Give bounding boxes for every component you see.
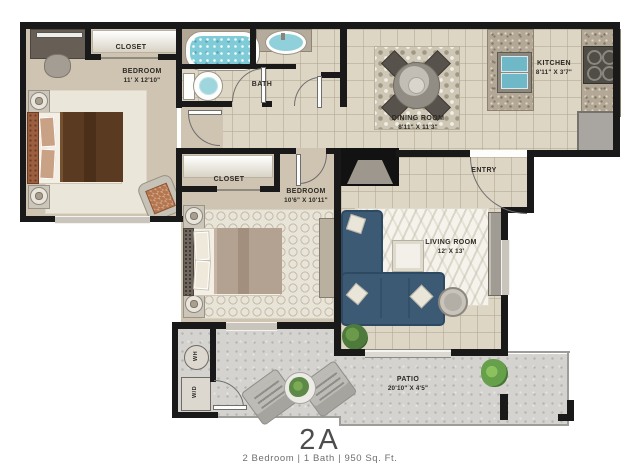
wall-closet2-bottom-a xyxy=(176,186,217,192)
wall-utility-left xyxy=(172,322,178,418)
wall-bedroom1-right-lower xyxy=(176,148,182,222)
toilet-water xyxy=(199,77,218,95)
living-window xyxy=(501,240,510,295)
bedroom2-window xyxy=(226,322,277,331)
bedroom1-pillow-1 xyxy=(39,117,56,148)
ottoman xyxy=(438,287,468,317)
wall-kitchen-right xyxy=(613,22,620,157)
bedroom2-door-leaf xyxy=(296,154,301,186)
entry-door-threshold xyxy=(470,150,527,157)
bath-label: BATH xyxy=(252,81,273,88)
bath-sink xyxy=(266,31,306,54)
nook-door-leaf xyxy=(317,76,322,108)
closet1-rod xyxy=(101,57,158,59)
closet1-label: CLOSET xyxy=(116,44,147,51)
bedroom1-label: BEDROOM xyxy=(122,68,161,75)
closet2-shelf xyxy=(183,155,273,178)
bedroom1-dims: 11' X 12'10" xyxy=(124,77,161,84)
wall-utility-bottom xyxy=(172,412,218,418)
water-heater-label: WH xyxy=(193,351,199,361)
bedroom2-headboard xyxy=(183,228,194,296)
wall-closet1-bottom-a xyxy=(85,54,101,60)
corner-plant xyxy=(342,324,368,350)
wall-closet1-bottom-b xyxy=(158,54,182,60)
kitchen-sink-basin-top xyxy=(501,56,528,72)
bedroom2-pillow-2 xyxy=(194,261,210,290)
hall-door-leaf xyxy=(188,110,222,115)
patio-label: PATIO xyxy=(397,376,419,383)
bedroom2-dims: 10'6" X 10'11" xyxy=(284,197,328,204)
stove-burner-3 xyxy=(587,66,602,81)
sliding-door xyxy=(365,349,451,358)
wall-closet2-right xyxy=(274,148,280,192)
wall-top xyxy=(20,22,620,29)
wall-utility-right xyxy=(210,328,216,382)
wall-entry-left-segment xyxy=(396,150,470,157)
patio-post xyxy=(500,394,508,420)
bedroom1-headboard xyxy=(27,112,39,184)
floorplan-canvas: WH W/D xyxy=(0,0,640,475)
bedroom2-lamp-top xyxy=(185,207,203,225)
closet2-label: CLOSET xyxy=(214,176,245,183)
wall-bath-dining-divider xyxy=(340,29,347,107)
bath-faucet xyxy=(281,33,285,40)
patio-plant-right xyxy=(481,359,508,387)
coffee-table xyxy=(392,240,424,272)
dining-room-dims: 8'11" X 11'3" xyxy=(398,124,438,131)
dining-room-label: DINING ROOM xyxy=(392,115,445,122)
patio-floor-right xyxy=(341,354,569,426)
wall-bedroom2-top-stub xyxy=(326,148,334,154)
living-room-label: LIVING ROOM xyxy=(425,239,476,246)
wall-bath-stub xyxy=(250,29,256,69)
bedroom1-lamp-top xyxy=(30,92,48,110)
wall-left xyxy=(20,22,26,222)
stove-burner-1 xyxy=(587,50,602,65)
living-room-dims: 12' X 13' xyxy=(438,248,465,255)
kitchen-dims: 8'11" X 3'7" xyxy=(536,69,572,76)
bedroom1-pillow-2 xyxy=(39,149,56,180)
bedroom1-lamp-bottom xyxy=(30,187,48,205)
closet2-rod xyxy=(217,189,260,191)
bedroom1-desk-chair xyxy=(44,54,71,78)
patio-rail-top xyxy=(506,351,570,353)
wall-bath-bottom-a xyxy=(176,101,232,107)
bedroom2-pillow-1 xyxy=(194,232,209,261)
sofa-seat-line-1 xyxy=(380,278,382,318)
bedroom1-window xyxy=(55,216,150,224)
sofa-seat-line-2 xyxy=(408,278,410,318)
wall-entry-vertical xyxy=(527,157,534,213)
bedroom2-label: BEDROOM xyxy=(286,188,325,195)
patio-corner-b xyxy=(567,400,574,421)
wall-living-bottom-right xyxy=(451,349,508,356)
entry-label: ENTRY xyxy=(471,167,496,174)
kitchen-label: KITCHEN xyxy=(537,60,571,67)
bedroom2-blanket-fold xyxy=(238,228,249,294)
dining-place-setting xyxy=(408,77,425,94)
tv-on-dresser xyxy=(36,32,83,38)
bedroom2-dresser xyxy=(319,218,335,298)
bedroom2-lamp-bottom xyxy=(185,295,203,313)
utility-door-leaf xyxy=(213,405,247,410)
kitchen-sink-basin-bottom xyxy=(501,73,528,89)
washer-dryer-label: W/D xyxy=(192,386,198,398)
bedroom1-blanket-fold xyxy=(84,112,96,182)
wall-bath-tub-edge xyxy=(182,64,296,69)
wall-entry-top-right xyxy=(527,150,620,157)
unit-summary: 2 Bedroom | 1 Bath | 950 Sq. Ft. xyxy=(0,453,640,464)
patio-dims: 20'10" X 4'5" xyxy=(388,385,428,392)
